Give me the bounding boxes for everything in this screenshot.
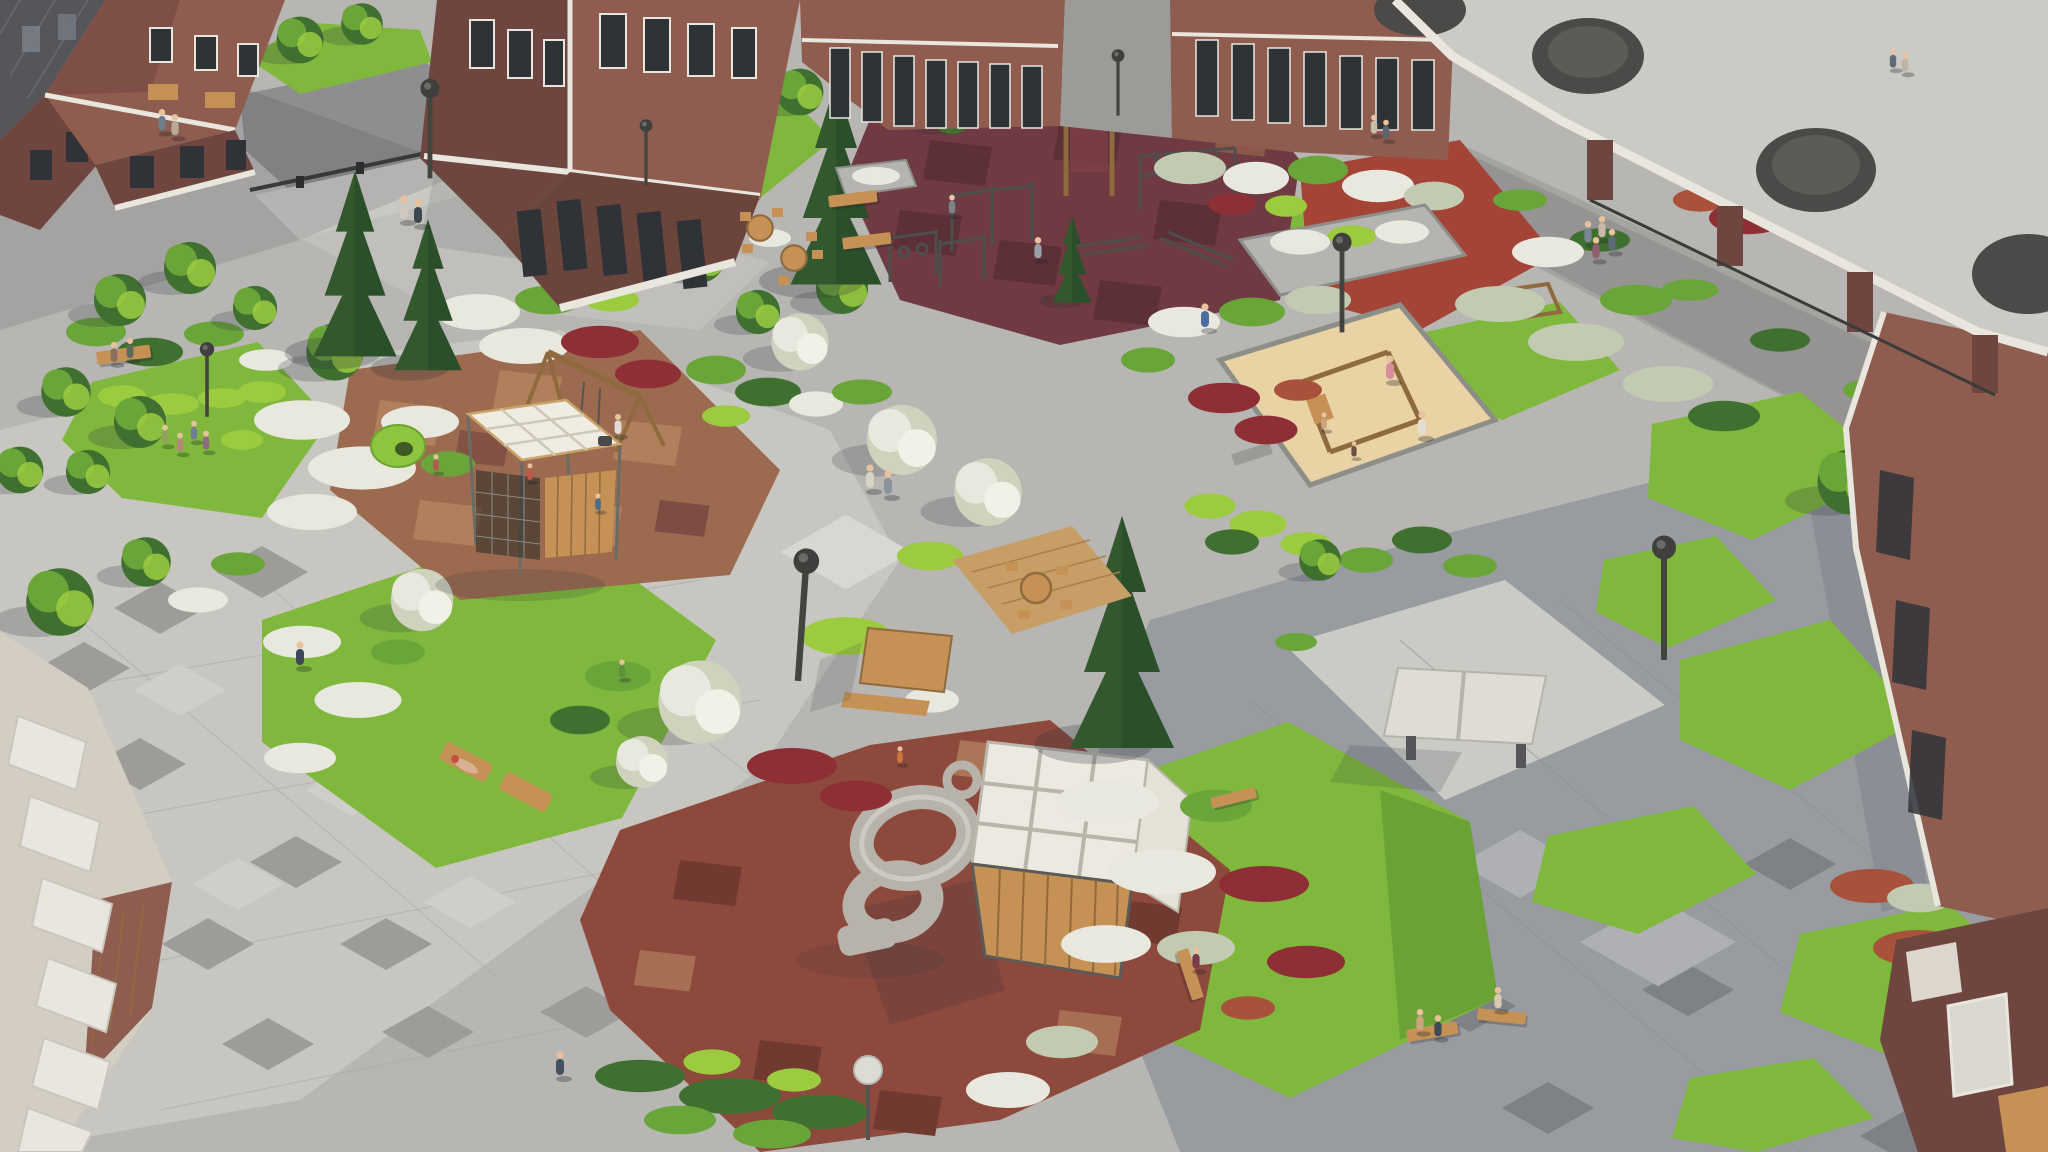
table-leg: [1516, 744, 1526, 768]
skylight-inner: [1548, 26, 1628, 78]
courtyard-render: [0, 0, 2048, 1152]
stroller: [598, 436, 612, 446]
play-pod: [371, 425, 425, 467]
table-leg: [1406, 736, 1416, 760]
skylight-inner: [1772, 135, 1860, 195]
alley: [1060, 0, 1172, 138]
courtyard-aerial-view: [0, 0, 2048, 1152]
apartment-building-center: [800, 0, 1065, 130]
cafe-table: [747, 215, 773, 241]
cube-slat-panel: [545, 470, 616, 558]
deck-table: [1021, 573, 1051, 603]
cafe-table: [781, 245, 807, 271]
